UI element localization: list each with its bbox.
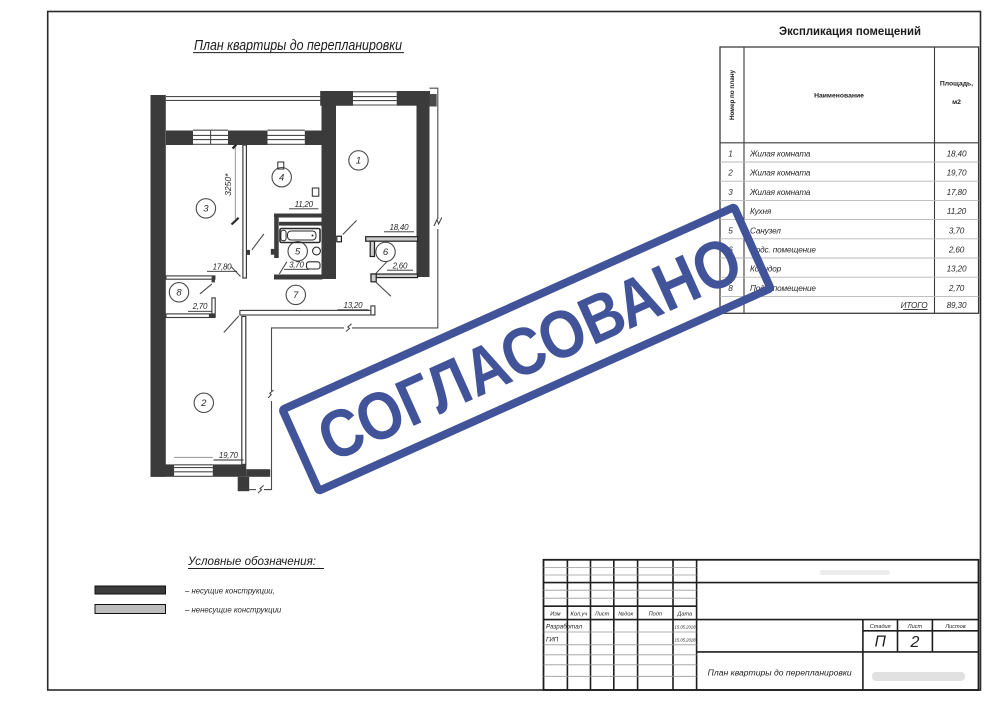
svg-text:7: 7 <box>293 290 299 301</box>
svg-text:ГИП: ГИП <box>546 637 559 644</box>
svg-text:– несущие конструкции,: – несущие конструкции, <box>184 587 275 596</box>
svg-text:17,80: 17,80 <box>213 263 233 272</box>
svg-text:3250*: 3250* <box>223 173 233 196</box>
svg-text:2,60: 2,60 <box>948 246 965 255</box>
svg-text:8: 8 <box>176 288 182 299</box>
svg-text:ИТОГО: ИТОГО <box>901 301 929 310</box>
svg-text:Номер по плану: Номер по плану <box>729 69 736 120</box>
svg-text:3,70: 3,70 <box>289 261 304 270</box>
svg-text:м2: м2 <box>952 99 961 106</box>
svg-text:Наименование: Наименование <box>814 93 864 100</box>
svg-text:15.05.2018: 15.05.2018 <box>675 625 697 630</box>
svg-text:Стадия: Стадия <box>870 624 891 630</box>
svg-text:6: 6 <box>383 247 389 258</box>
svg-text:Кухня: Кухня <box>750 207 772 216</box>
svg-text:Санузел: Санузел <box>750 226 781 235</box>
svg-text:4: 4 <box>279 172 284 183</box>
svg-text:2,70: 2,70 <box>948 284 965 293</box>
svg-text:Жилая комната: Жилая комната <box>749 150 811 159</box>
svg-text:Площадь,: Площадь, <box>940 81 973 88</box>
svg-text:Изм: Изм <box>550 612 561 618</box>
svg-text:13,20: 13,20 <box>344 301 364 310</box>
svg-text:2: 2 <box>727 169 733 178</box>
svg-text:5: 5 <box>295 247 301 258</box>
svg-text:2,60: 2,60 <box>392 261 408 270</box>
svg-text:2: 2 <box>200 398 207 409</box>
svg-text:1: 1 <box>728 150 732 159</box>
svg-text:17,80: 17,80 <box>947 188 967 197</box>
svg-text:– ненесущие конструкции: – ненесущие конструкции <box>184 606 282 615</box>
svg-text:18,40: 18,40 <box>947 150 967 159</box>
svg-text:Подс. помещение: Подс. помещение <box>750 246 816 255</box>
svg-text:3: 3 <box>728 188 733 197</box>
svg-text:11,20: 11,20 <box>947 207 967 216</box>
svg-text:№док: №док <box>618 612 633 618</box>
svg-text:5: 5 <box>728 226 733 235</box>
svg-text:2: 2 <box>910 634 920 651</box>
svg-text:Жилая комната: Жилая комната <box>749 188 811 197</box>
svg-text:Экспликация помещений: Экспликация помещений <box>779 24 921 38</box>
svg-text:П: П <box>875 634 887 651</box>
svg-text:Подп: Подп <box>649 612 662 618</box>
svg-text:18,40: 18,40 <box>390 223 410 232</box>
svg-text:19,70: 19,70 <box>219 451 239 460</box>
svg-text:13,20: 13,20 <box>947 265 967 274</box>
svg-text:Лист: Лист <box>907 624 923 630</box>
svg-text:Дата: Дата <box>676 612 692 618</box>
svg-text:Условные обозначения:: Условные обозначения: <box>187 555 316 568</box>
svg-text:15.05.2018: 15.05.2018 <box>675 638 697 643</box>
svg-text:Жилая комната: Жилая комната <box>749 169 811 178</box>
svg-text:План квартиры до перепланировк: План квартиры до перепланировки <box>708 668 852 678</box>
svg-text:Лист: Лист <box>594 612 610 618</box>
svg-text:19,70: 19,70 <box>947 169 967 178</box>
svg-text:Кол.уч: Кол.уч <box>571 612 588 618</box>
svg-text:Разработал: Разработал <box>546 624 583 631</box>
svg-text:План квартиры до перепланировк: План квартиры до перепланировки <box>194 38 402 54</box>
svg-text:2,70: 2,70 <box>192 302 208 311</box>
svg-text:3: 3 <box>203 204 209 215</box>
svg-text:89,30: 89,30 <box>947 301 967 310</box>
svg-text:Листов: Листов <box>944 624 965 630</box>
svg-text:3,70: 3,70 <box>949 226 965 235</box>
svg-text:1: 1 <box>356 156 361 167</box>
svg-text:11,20: 11,20 <box>295 200 314 209</box>
